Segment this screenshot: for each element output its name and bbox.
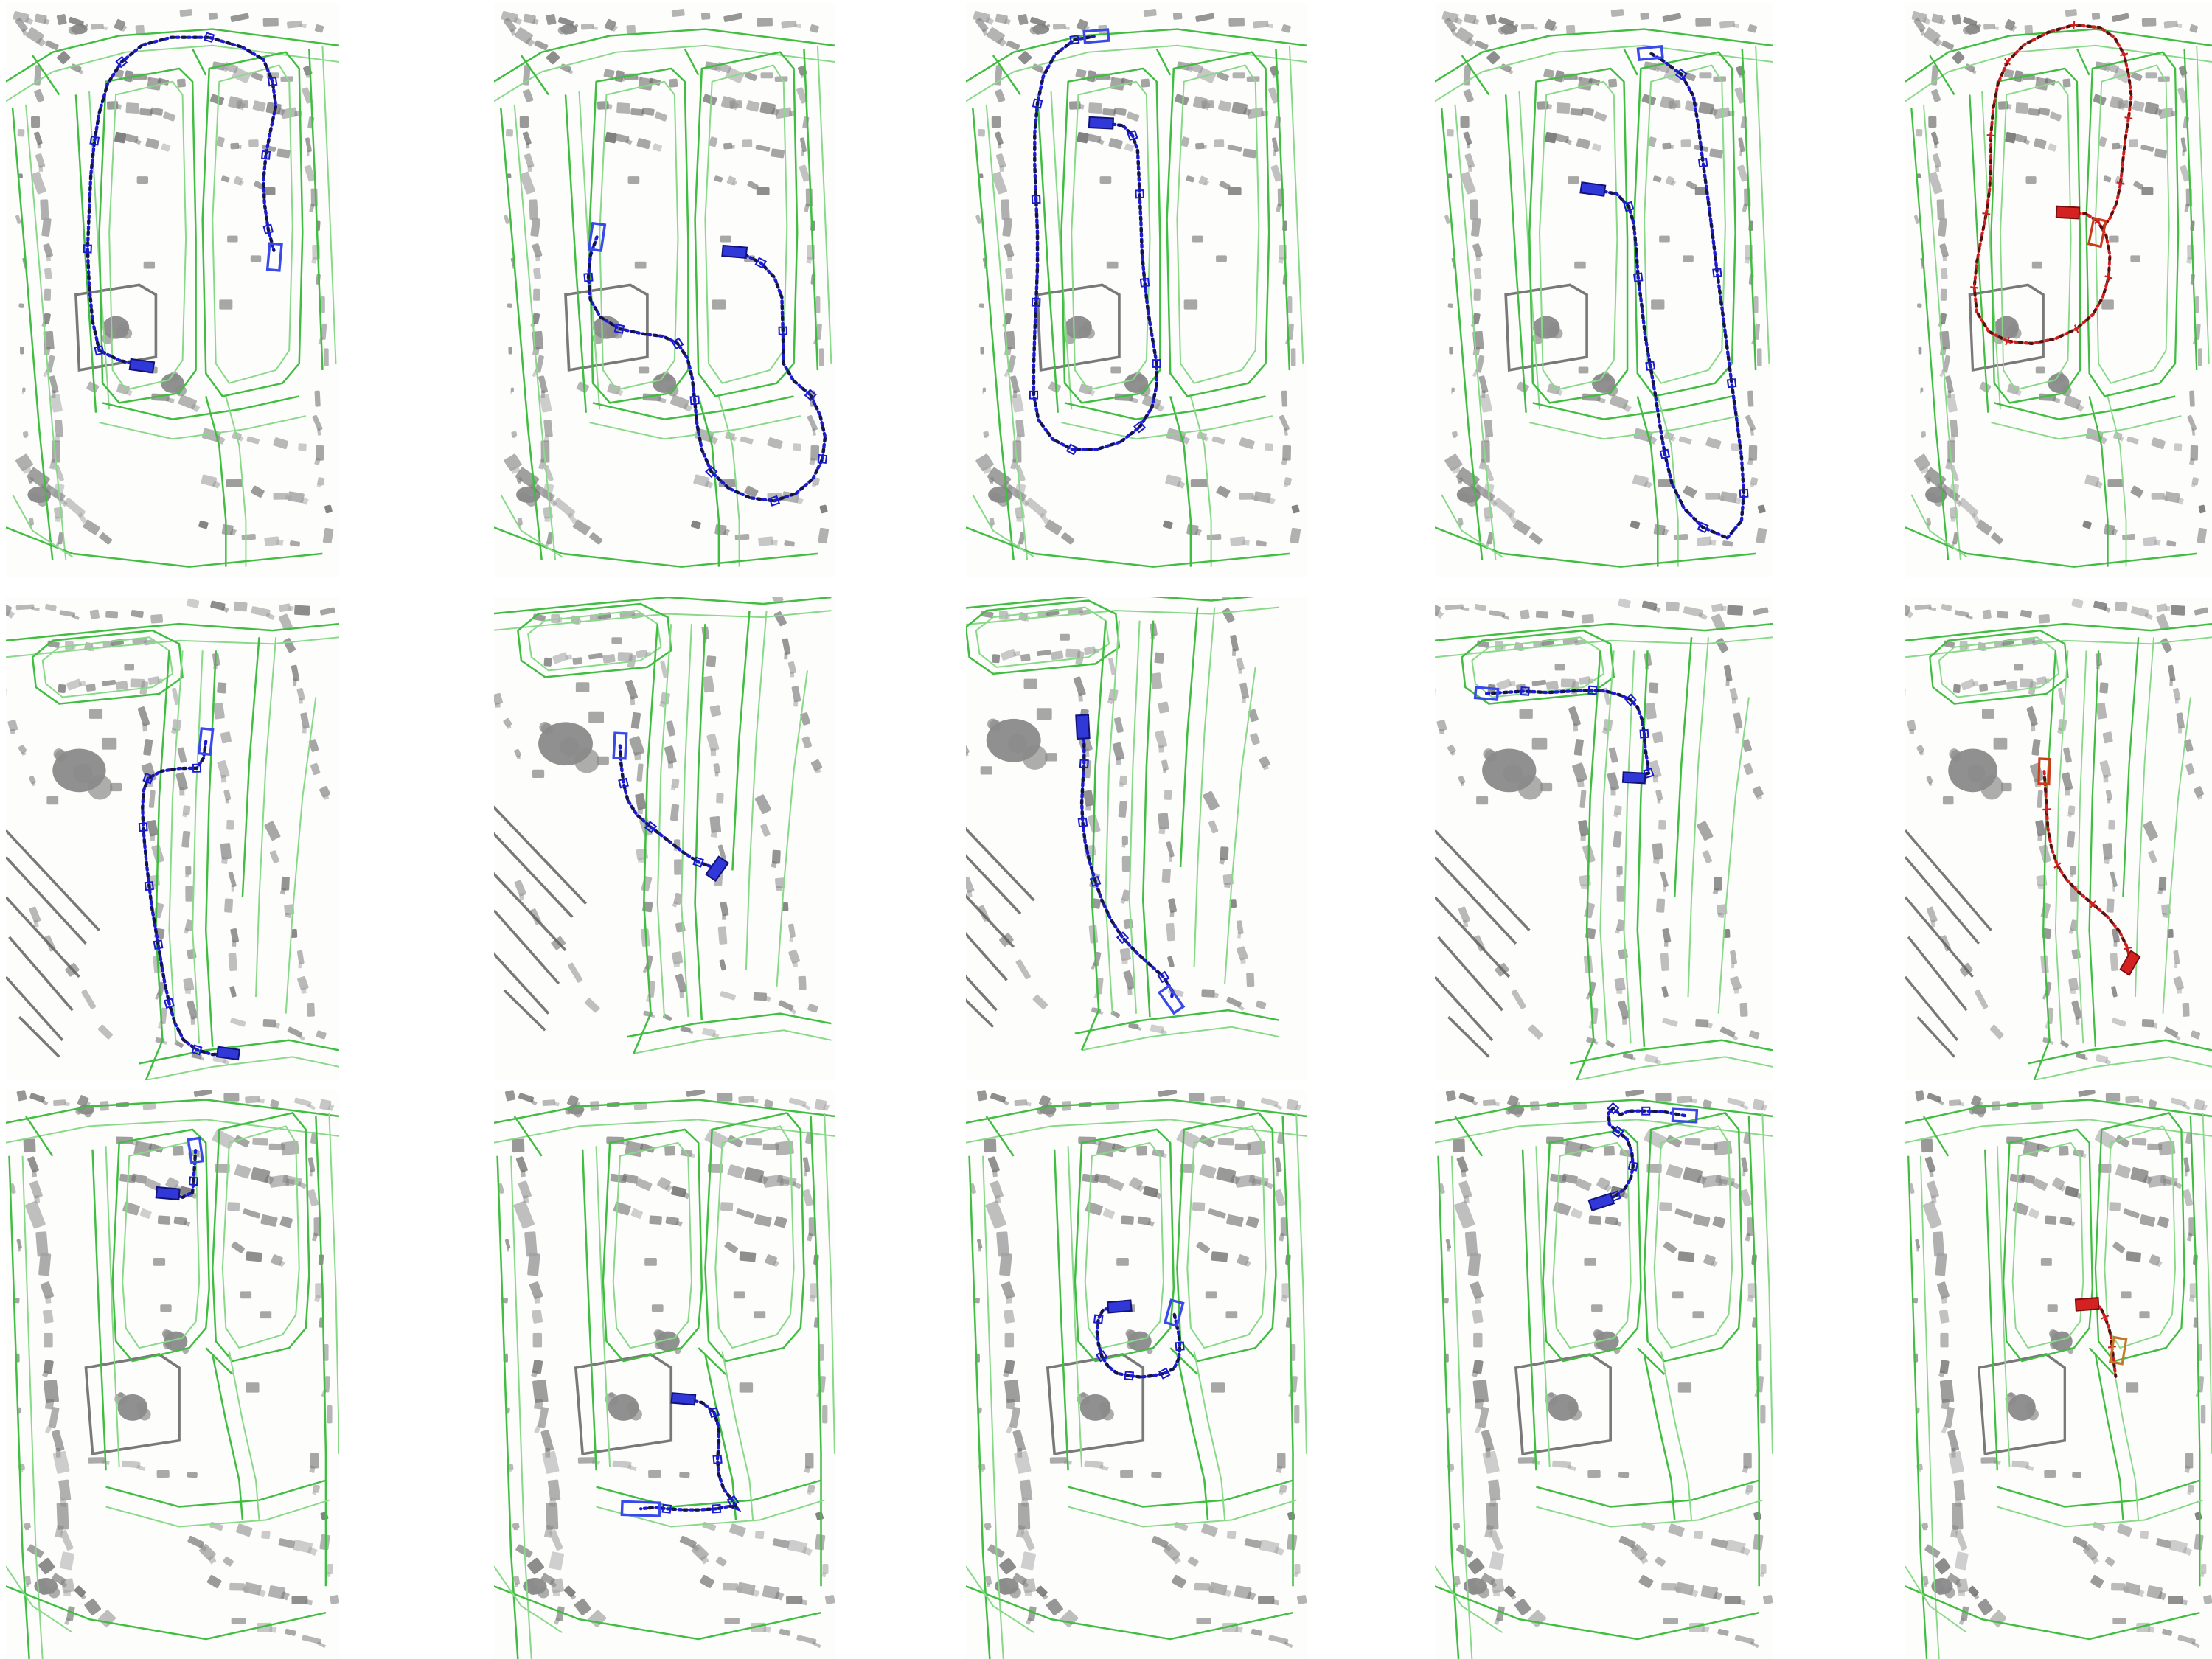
pointcloud-blob: [1979, 684, 1989, 692]
pointcloud-blob: [1207, 534, 1222, 540]
pointcloud-blob: [1005, 268, 1013, 279]
pointcloud-blob: [2014, 664, 2023, 670]
pointcloud-blob: [46, 796, 58, 804]
pointcloud-blob: [1121, 1215, 1134, 1225]
pointcloud-blob: [1455, 1583, 1459, 1587]
pointcloud-blob: [597, 757, 609, 765]
pointcloud-blob: [237, 145, 242, 149]
panel-canvas: [1435, 1090, 1773, 1659]
pointcloud-blob: [1658, 799, 1661, 803]
pointcloud-blob: [1158, 827, 1166, 835]
pointcloud-blob: [185, 886, 193, 902]
pointcloud-blob: [2175, 698, 2179, 703]
pointcloud-blob: [784, 652, 787, 659]
pointcloud-blob: [1651, 299, 1664, 309]
vegetation-blob: [1009, 1587, 1021, 1598]
pointcloud-blob: [35, 1231, 48, 1256]
pointcloud-blob: [1532, 738, 1548, 750]
pointcloud-blob: [1579, 366, 1589, 373]
vegetation-blob: [1503, 764, 1523, 783]
pointcloud-blob: [1540, 783, 1552, 791]
vegetation-blob: [69, 27, 77, 35]
pointcloud-blob: [535, 255, 540, 261]
pointcloud-blob: [24, 1138, 36, 1152]
pointcloud-blob: [1206, 1291, 1217, 1298]
pointcloud-blob: [1669, 145, 1674, 149]
pointcloud-blob: [1653, 856, 1660, 864]
pointcloud-blob: [1983, 609, 1992, 619]
pointcloud-blob: [711, 829, 718, 838]
vegetation-blob: [1517, 775, 1543, 799]
pointcloud-blob: [229, 953, 238, 971]
pointcloud-blob: [668, 761, 673, 769]
pointcloud-blob: [2071, 948, 2081, 959]
vegetation-blob: [1472, 1585, 1479, 1592]
pointcloud-blob: [2140, 1531, 2149, 1540]
pointcloud-blob: [712, 299, 726, 309]
pointcloud-blob: [302, 726, 307, 734]
pointcloud-blob: [980, 347, 984, 354]
pointcloud-blob: [1447, 129, 1454, 136]
pointcloud-blob: [2110, 953, 2119, 971]
pointcloud-blob: [1005, 1333, 1014, 1347]
pointcloud-blob: [1465, 1231, 1478, 1256]
pointcloud-blob: [319, 1534, 330, 1551]
pointcloud-blob: [2107, 479, 2123, 487]
pointcloud-blob: [527, 1253, 540, 1276]
vegetation-blob: [627, 1402, 638, 1412]
panel-canvas: [966, 3, 1307, 577]
pointcloud-blob: [2141, 187, 2153, 195]
pointcloud-blob: [724, 1618, 739, 1624]
vegetation-blob: [1515, 24, 1518, 27]
vegetation-blob: [88, 775, 113, 799]
pointcloud-blob: [1127, 987, 1133, 995]
pointcloud-blob: [1088, 102, 1102, 114]
pointcloud-blob: [1694, 1531, 1703, 1540]
pointcloud-blob: [288, 606, 293, 611]
pointcloud-blob: [220, 731, 232, 744]
vegetation-blob: [574, 748, 599, 773]
pointcloud-blob: [1573, 723, 1578, 731]
pointcloud-blob: [1942, 255, 1947, 261]
pointcloud-blob: [532, 770, 544, 778]
pointcloud-blob: [1733, 987, 1739, 993]
vegetation-blob: [85, 1110, 92, 1117]
vegetation-blob: [1099, 1402, 1110, 1412]
pointcloud-blob: [1242, 696, 1246, 703]
panel-canvas: [1435, 3, 1773, 577]
pointcloud-blob: [1731, 962, 1735, 969]
pointcloud-blob: [669, 78, 678, 87]
pointcloud-blob: [543, 658, 552, 667]
pointcloud-blob: [1982, 709, 1994, 719]
pointcloud-blob: [2015, 102, 2028, 114]
vegetation-blob: [558, 27, 566, 35]
vegetation-blob: [85, 24, 88, 27]
pointcloud-blob: [299, 698, 303, 703]
pointcloud-blob: [495, 703, 501, 708]
pointcloud-blob: [518, 481, 521, 484]
pointcloud-blob: [2005, 132, 2016, 144]
pointcloud-blob: [1611, 9, 1624, 17]
pointcloud-blob: [635, 262, 647, 269]
pointcloud-blob: [1291, 348, 1296, 366]
pointcloud-blob: [815, 296, 820, 313]
pointcloud-blob: [1078, 693, 1083, 702]
pointcloud-blob: [1154, 652, 1164, 664]
pointcloud-blob: [521, 1169, 526, 1177]
pointcloud-blob: [1568, 176, 1579, 184]
trajectory-map-panel-r0c3: [1435, 3, 1773, 577]
pointcloud-blob: [1574, 262, 1586, 269]
pointcloud-blob: [1196, 1618, 1211, 1624]
pointcloud-blob: [79, 681, 86, 686]
pointcloud-blob: [679, 990, 684, 998]
pointcloud-blob: [1045, 753, 1057, 761]
pointcloud-blob: [1461, 1169, 1466, 1177]
pointcloud-blob: [553, 1590, 560, 1596]
pointcloud-blob: [2031, 723, 2035, 731]
pointcloud-blob: [2198, 348, 2202, 366]
pointcloud-blob: [1747, 391, 1753, 407]
pointcloud-blob: [1910, 729, 1914, 734]
pointcloud-blob: [1994, 738, 2008, 750]
trajectory-map-panel-r1c0: [6, 597, 339, 1080]
pointcloud-blob: [1191, 479, 1208, 487]
trajectory-map-panel-r1c3: [1435, 597, 1773, 1080]
pointcloud-blob: [18, 129, 25, 136]
pointcloud-blob: [40, 199, 49, 220]
pointcloud-blob: [26, 1583, 29, 1587]
vegetation-blob: [538, 1587, 549, 1598]
vegetation-blob: [566, 25, 572, 31]
panel-canvas: [1435, 597, 1773, 1080]
pointcloud-blob: [307, 150, 310, 156]
pointcloud-blob: [1242, 540, 1250, 546]
vegetation-blob: [1030, 27, 1038, 35]
pointcloud-blob: [307, 1003, 315, 1017]
pointcloud-blob: [2104, 775, 2109, 782]
pointcloud-blob: [2174, 962, 2178, 969]
pointcloud-blob: [979, 303, 985, 308]
pointcloud-blob: [588, 712, 604, 723]
pointcloud-blob: [2189, 391, 2195, 407]
pointcloud-blob: [1493, 1590, 1500, 1596]
pointcloud-blob: [44, 268, 52, 279]
pointcloud-blob: [1666, 602, 1680, 612]
pointcloud-blob: [285, 913, 292, 918]
pointcloud-blob: [730, 100, 742, 108]
pointcloud-blob: [2038, 614, 2050, 624]
pointcloud-blob: [628, 176, 640, 184]
pointcloud-blob: [310, 1169, 313, 1176]
vegetation-blob: [575, 24, 578, 27]
pointcloud-blob: [1224, 883, 1231, 888]
pointcloud-blob: [2169, 678, 2173, 686]
pointcloud-blob: [1158, 745, 1164, 752]
pointcloud-blob: [217, 682, 226, 694]
pointcloud-blob: [630, 696, 635, 705]
agent-box-solid: [2056, 206, 2079, 219]
pointcloud-blob: [1239, 669, 1242, 674]
pointcloud-blob: [1158, 701, 1169, 714]
pointcloud-blob: [526, 142, 529, 148]
vegetation-blob: [655, 1330, 666, 1340]
pointcloud-blob: [1085, 804, 1091, 811]
pointcloud-blob: [754, 1311, 766, 1318]
panel-canvas: [6, 1090, 339, 1659]
pointcloud-blob: [992, 1169, 998, 1177]
pointcloud-blob: [237, 100, 248, 108]
pointcloud-blob: [1582, 614, 1594, 624]
pointcloud-blob: [1937, 199, 1945, 220]
pointcloud-blob: [986, 1528, 990, 1530]
pointcloud-blob: [524, 1231, 538, 1256]
vegetation-blob: [1978, 24, 1981, 27]
pointcloud-blob: [716, 793, 724, 804]
pointcloud-blob: [1013, 651, 1020, 656]
pointcloud-blob: [1672, 1291, 1684, 1298]
pointcloud-blob: [637, 807, 643, 814]
pointcloud-blob: [793, 443, 801, 451]
pointcloud-blob: [38, 1253, 51, 1276]
pointcloud-blob: [45, 1295, 51, 1304]
trajectory-map-panel-r2c2: [966, 1090, 1307, 1659]
pointcloud-blob: [2099, 682, 2108, 694]
pointcloud-blob: [740, 1382, 753, 1392]
pointcloud-blob: [1616, 988, 1622, 994]
pointcloud-blob: [1917, 303, 1922, 308]
pointcloud-blob: [1473, 289, 1480, 301]
pointcloud-blob: [731, 145, 735, 149]
pointcloud-blob: [2121, 1291, 2131, 1298]
pointcloud-blob: [2044, 1470, 2056, 1478]
pointcloud-blob: [226, 799, 229, 803]
trajectory-map-panel-r0c2: [966, 3, 1307, 577]
pointcloud-blob: [1663, 885, 1666, 892]
agent-box-solid: [217, 1047, 240, 1060]
pointcloud-blob: [1078, 104, 1084, 110]
pointcloud-blob: [2129, 139, 2138, 147]
pointcloud-blob: [757, 18, 773, 27]
pointcloud-blob: [324, 348, 329, 366]
pointcloud-blob: [32, 1169, 37, 1177]
pointcloud-blob: [1169, 855, 1172, 862]
pointcloud-blob: [226, 479, 243, 487]
pointcloud-blob: [1144, 9, 1157, 17]
pointcloud-blob: [209, 13, 218, 20]
pointcloud-blob: [150, 833, 155, 841]
pointcloud-blob: [1020, 654, 1031, 662]
pointcloud-blob: [1473, 268, 1481, 279]
pointcloud-blob: [1246, 973, 1254, 987]
pointcloud-blob: [116, 104, 122, 110]
agent-box-solid: [1107, 1301, 1132, 1313]
pointcloud-blob: [616, 102, 630, 114]
pointcloud-blob: [1721, 606, 1726, 611]
pointcloud-blob: [298, 962, 302, 969]
pointcloud-blob: [1699, 72, 1711, 78]
pointcloud-blob: [1294, 1405, 1299, 1423]
pointcloud-blob: [1265, 443, 1273, 451]
pointcloud-blob: [38, 165, 43, 172]
pointcloud-blob: [260, 1311, 271, 1318]
pointcloud-blob: [1587, 1470, 1601, 1478]
trajectory-map-panel-r0c1: [494, 3, 835, 577]
vegetation-blob: [539, 722, 550, 733]
pointcloud-blob: [55, 517, 61, 522]
pointcloud-blob: [1649, 682, 1659, 694]
pointcloud-blob: [815, 1534, 826, 1551]
pointcloud-blob: [2045, 1215, 2056, 1225]
pointcloud-blob: [1447, 1248, 1450, 1252]
pointcloud-blob: [37, 142, 41, 148]
panel-canvas: [6, 597, 339, 1080]
pointcloud-blob: [2001, 783, 2012, 791]
pointcloud-blob: [2126, 1382, 2139, 1392]
pointcloud-blob: [1163, 768, 1166, 773]
pointcloud-blob: [1683, 255, 1694, 262]
pointcloud-blob: [142, 723, 147, 731]
pointcloud-blob: [711, 748, 717, 756]
vegetation-blob: [1963, 27, 1970, 35]
pointcloud-blob: [187, 948, 197, 959]
pointcloud-blob: [1997, 611, 2008, 619]
pointcloud-blob: [1001, 199, 1010, 220]
pointcloud-blob: [2171, 605, 2185, 616]
pointcloud-blob: [734, 1291, 745, 1298]
pointcloud-blob: [1233, 72, 1245, 78]
pointcloud-blob: [2163, 913, 2168, 918]
pointcloud-blob: [1037, 708, 1052, 720]
vegetation-blob: [1022, 745, 1047, 769]
vegetation-blob: [77, 25, 83, 31]
pointcloud-blob: [1656, 898, 1665, 912]
pointcloud-blob: [1742, 1169, 1745, 1176]
pointcloud-blob: [2115, 602, 2128, 612]
pointcloud-blob: [1216, 255, 1227, 262]
vegetation-blob: [1967, 764, 1985, 783]
pointcloud-blob: [1680, 139, 1691, 147]
pointcloud-blob: [1584, 1258, 1596, 1266]
pointcloud-blob: [44, 1333, 52, 1347]
pointcloud-blob: [294, 605, 310, 616]
vegetation-blob: [2050, 1330, 2059, 1340]
pointcloud-blob: [755, 1531, 765, 1540]
pointcloud-blob: [1232, 649, 1236, 656]
pointcloud-blob: [1929, 1169, 1933, 1177]
pointcloud-blob: [804, 1169, 807, 1176]
pointcloud-blob: [2107, 799, 2110, 803]
figure-grid: [0, 0, 2212, 1659]
pointcloud-blob: [1924, 1583, 1927, 1587]
pointcloud-blob: [1455, 1528, 1458, 1530]
pointcloud-blob: [1622, 1016, 1627, 1025]
pointcloud-blob: [1192, 236, 1203, 243]
pointcloud-blob: [761, 72, 773, 78]
pointcloud-blob: [232, 885, 234, 892]
pointcloud-blob: [232, 1618, 246, 1624]
pointcloud-blob: [701, 13, 711, 20]
pointcloud-blob: [2070, 988, 2076, 994]
pointcloud-blob: [1953, 684, 1961, 693]
pointcloud-blob: [24, 436, 27, 438]
agent-box-solid: [722, 246, 747, 258]
vegetation-blob: [43, 1585, 49, 1592]
pointcloud-blob: [2059, 1146, 2069, 1156]
pointcloud-blob: [720, 1202, 733, 1211]
pointcloud-blob: [1692, 1311, 1704, 1318]
pointcloud-blob: [1588, 1215, 1601, 1225]
pointcloud-blob: [1122, 856, 1130, 872]
pointcloud-blob: [527, 165, 532, 172]
pointcloud-blob: [2048, 1304, 2058, 1312]
pointcloud-blob: [2041, 1258, 2052, 1266]
trajectory-map-panel-r1c1: [494, 597, 835, 1080]
pointcloud-blob: [1658, 820, 1666, 830]
pointcloud-blob: [2101, 299, 2114, 309]
pointcloud-blob: [114, 132, 127, 144]
agent-box-solid: [1623, 772, 1645, 783]
pointcloud-blob: [1669, 100, 1681, 108]
pointcloud-blob: [1678, 1382, 1691, 1392]
pointcloud-blob: [605, 132, 617, 144]
pointcloud-blob: [1485, 517, 1491, 522]
pointcloud-blob: [720, 236, 731, 243]
pointcloud-blob: [1460, 116, 1469, 128]
pointcloud-blob: [1475, 1295, 1481, 1304]
pointcloud-blob: [314, 391, 320, 407]
pointcloud-blob: [715, 772, 719, 776]
vegetation-blob: [2009, 322, 2018, 331]
vegetation-blob: [1038, 25, 1044, 31]
pointcloud-blob: [1218, 1138, 1234, 1145]
pointcloud-blob: [2122, 534, 2135, 540]
pointcloud-blob: [611, 637, 622, 644]
pointcloud-blob: [1227, 1531, 1237, 1540]
pointcloud-blob: [533, 1333, 542, 1347]
vegetation-blob: [1127, 1330, 1138, 1340]
pointcloud-blob: [998, 142, 1001, 148]
pointcloud-blob: [2032, 262, 2042, 269]
pointcloud-blob: [1958, 1590, 1965, 1596]
pointcloud-blob: [10, 729, 15, 734]
pointcloud-blob: [1941, 289, 1947, 301]
pointcloud-blob: [29, 481, 32, 484]
pointcloud-blob: [219, 299, 232, 309]
pointcloud-blob: [2109, 1202, 2121, 1211]
pointcloud-blob: [1473, 1333, 1482, 1347]
pointcloud-blob: [825, 1595, 835, 1604]
vegetation-blob: [1939, 1585, 1945, 1592]
pointcloud-blob: [1618, 948, 1628, 959]
pointcloud-blob: [1739, 1003, 1747, 1017]
vegetation-blob: [1567, 1402, 1577, 1412]
pointcloud-blob: [1458, 481, 1462, 484]
pointcloud-blob: [664, 1146, 675, 1156]
vegetation-blob: [1594, 1330, 1605, 1340]
pointcloud-blob: [1121, 959, 1127, 964]
pointcloud-blob: [2146, 72, 2157, 78]
pointcloud-blob: [1297, 1595, 1307, 1604]
pointcloud-blob: [227, 1202, 240, 1211]
pointcloud-blob: [185, 988, 191, 994]
vegetation-blob: [1971, 25, 1976, 31]
pointcloud-blob: [1005, 289, 1012, 301]
vegetation-blob: [119, 322, 129, 331]
pointcloud-blob: [177, 78, 186, 87]
